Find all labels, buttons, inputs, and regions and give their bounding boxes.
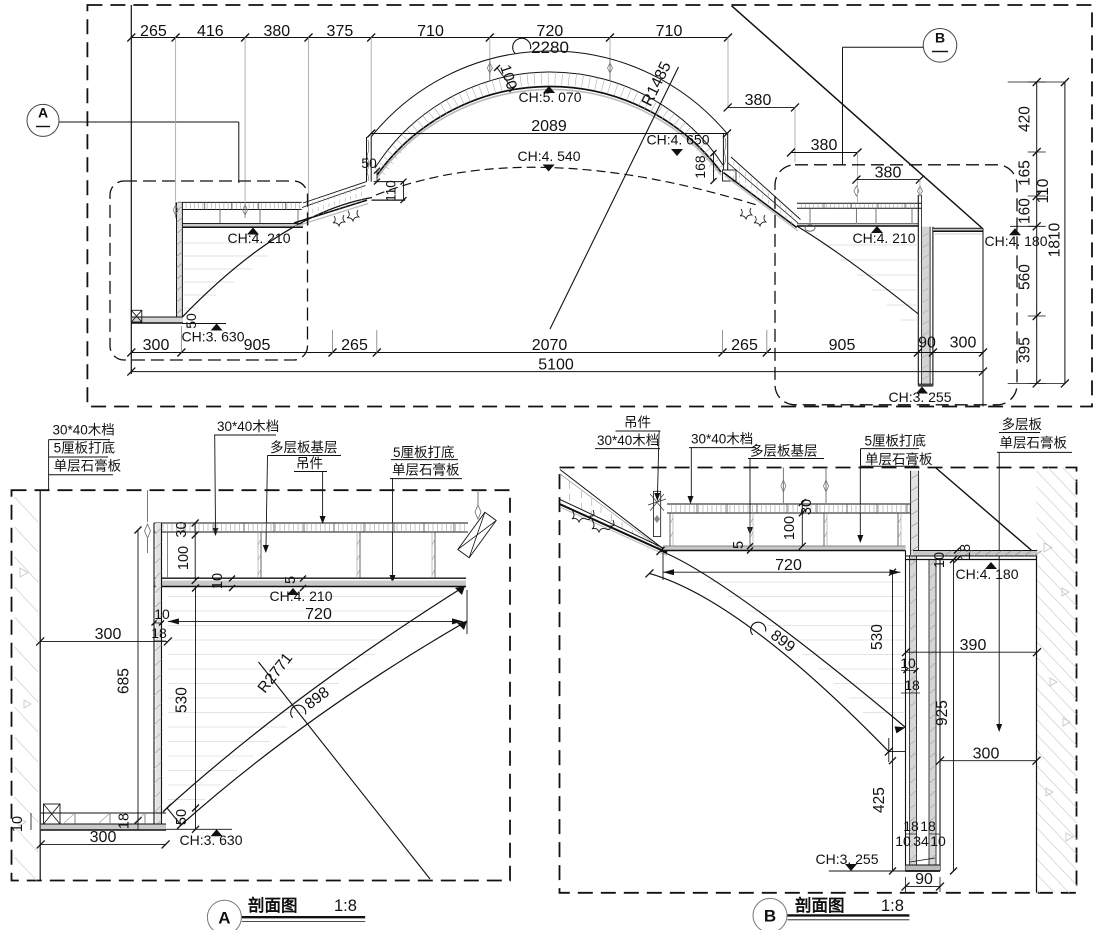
svg-text:30*40木档: 30*40木档 (53, 423, 115, 438)
svg-text:300: 300 (143, 337, 170, 354)
svg-text:18: 18 (958, 544, 974, 560)
svg-text:160: 160 (1017, 198, 1034, 224)
svg-text:CH:3. 255: CH:3. 255 (815, 851, 878, 867)
svg-text:CH:4. 540: CH:4. 540 (517, 148, 580, 164)
svg-text:CH:4. 650: CH:4. 650 (646, 132, 709, 148)
svg-text:1:8: 1:8 (881, 897, 904, 915)
svg-text:560: 560 (1017, 264, 1034, 290)
svg-text:18: 18 (920, 818, 936, 834)
svg-text:30*40木档: 30*40木档 (597, 433, 659, 448)
svg-text:5厘板打底: 5厘板打底 (54, 440, 116, 456)
svg-text:CH:4. 210: CH:4. 210 (269, 588, 332, 604)
svg-text:530: 530 (174, 687, 191, 713)
svg-text:168: 168 (692, 155, 708, 179)
svg-text:390: 390 (960, 637, 987, 654)
svg-text:18: 18 (117, 813, 133, 829)
svg-text:10: 10 (154, 606, 170, 622)
svg-text:380: 380 (745, 92, 772, 109)
svg-text:单层石膏板: 单层石膏板 (392, 462, 460, 478)
svg-text:265: 265 (731, 337, 758, 354)
svg-text:单层石膏板: 单层石膏板 (865, 451, 933, 467)
svg-text:10: 10 (210, 573, 226, 589)
svg-text:吊件: 吊件 (296, 456, 323, 471)
svg-text:30: 30 (799, 499, 815, 515)
svg-text:380: 380 (811, 137, 838, 154)
svg-text:CH:4. 210: CH:4. 210 (852, 230, 915, 246)
svg-text:B: B (764, 907, 776, 926)
svg-text:A: A (38, 105, 48, 121)
svg-text:剖面图: 剖面图 (795, 895, 845, 915)
svg-text:CH:3. 255: CH:3. 255 (888, 389, 951, 405)
svg-text:380: 380 (263, 23, 290, 40)
svg-text:2070: 2070 (532, 337, 568, 354)
svg-text:5厘板打底: 5厘板打底 (865, 433, 927, 449)
svg-text:吊件: 吊件 (624, 415, 651, 430)
svg-text:165: 165 (1017, 160, 1034, 186)
svg-text:1810: 1810 (1047, 222, 1064, 257)
svg-text:5: 5 (283, 576, 299, 584)
svg-text:18: 18 (151, 625, 167, 641)
svg-text:18: 18 (904, 677, 920, 693)
svg-text:925: 925 (934, 700, 951, 726)
svg-text:90: 90 (915, 871, 933, 888)
svg-text:5厘板打底: 5厘板打底 (393, 444, 455, 460)
svg-text:A: A (218, 909, 230, 928)
svg-text:710: 710 (417, 23, 444, 40)
svg-text:多层板: 多层板 (1002, 416, 1043, 432)
svg-text:30*40木档: 30*40木档 (691, 432, 753, 447)
svg-text:30*40木档: 30*40木档 (217, 419, 279, 434)
svg-text:420: 420 (1017, 106, 1034, 132)
svg-text:425: 425 (871, 787, 888, 813)
svg-text:50: 50 (174, 809, 190, 825)
svg-text:265: 265 (341, 337, 368, 354)
svg-text:CH:3. 630: CH:3. 630 (181, 329, 244, 345)
svg-text:10: 10 (930, 833, 946, 849)
svg-text:1:8: 1:8 (334, 897, 357, 915)
svg-text:CH:4. 180: CH:4. 180 (984, 233, 1047, 249)
svg-text:30: 30 (174, 521, 190, 537)
svg-text:300: 300 (95, 626, 122, 643)
svg-text:300: 300 (973, 745, 1000, 762)
svg-text:CH:4. 180: CH:4. 180 (955, 566, 1018, 582)
svg-text:10: 10 (895, 833, 911, 849)
svg-text:110: 110 (1035, 178, 1052, 203)
svg-text:CH:5. 070: CH:5. 070 (518, 89, 581, 105)
svg-text:B: B (935, 30, 945, 46)
svg-text:CH:3. 630: CH:3. 630 (179, 832, 242, 848)
svg-text:395: 395 (1017, 337, 1034, 363)
svg-text:300: 300 (950, 335, 977, 352)
svg-text:100: 100 (782, 516, 798, 540)
svg-text:375: 375 (327, 23, 354, 40)
svg-text:单层石膏板: 单层石膏板 (54, 458, 122, 474)
svg-text:50: 50 (361, 155, 377, 171)
svg-text:265: 265 (140, 23, 167, 40)
svg-text:多层板基层: 多层板基层 (270, 439, 338, 455)
svg-text:单层石膏板: 单层石膏板 (1000, 435, 1068, 451)
svg-text:720: 720 (305, 606, 332, 623)
svg-text:905: 905 (829, 337, 856, 354)
svg-text:10: 10 (932, 552, 948, 568)
svg-text:10: 10 (10, 816, 26, 832)
svg-text:34: 34 (913, 833, 929, 849)
svg-text:多层板基层: 多层板基层 (750, 443, 818, 459)
svg-text:905: 905 (244, 337, 271, 354)
svg-text:2280: 2280 (531, 38, 569, 57)
svg-text:90: 90 (918, 335, 936, 352)
svg-text:CH:4. 210: CH:4. 210 (227, 230, 290, 246)
svg-text:100: 100 (176, 546, 192, 570)
svg-text:685: 685 (116, 668, 133, 694)
svg-text:5100: 5100 (538, 356, 574, 373)
svg-text:530: 530 (869, 624, 886, 650)
svg-text:416: 416 (197, 23, 224, 40)
svg-text:110: 110 (384, 180, 399, 202)
svg-text:2089: 2089 (531, 118, 567, 135)
svg-text:710: 710 (656, 23, 683, 40)
svg-text:300: 300 (90, 829, 117, 846)
svg-text:50: 50 (183, 313, 199, 329)
svg-text:18: 18 (903, 818, 919, 834)
svg-text:720: 720 (775, 557, 802, 574)
svg-text:5: 5 (731, 541, 747, 549)
svg-text:380: 380 (875, 164, 902, 181)
svg-text:剖面图: 剖面图 (248, 895, 298, 915)
